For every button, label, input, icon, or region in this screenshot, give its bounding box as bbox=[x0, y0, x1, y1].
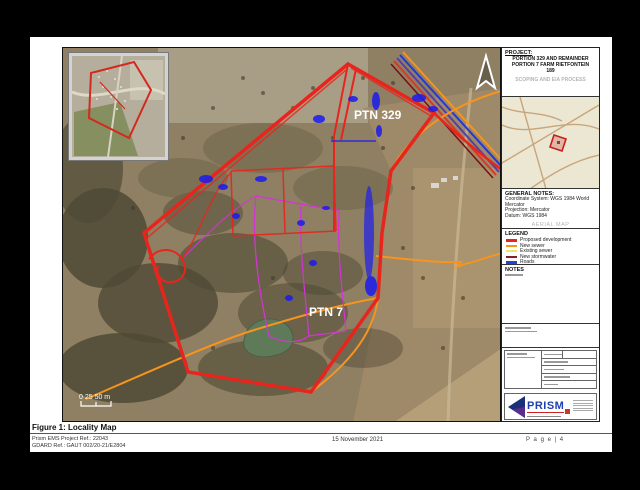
titleblock-table bbox=[504, 350, 597, 389]
process-label: SCOPING AND EIA PROCESS bbox=[502, 77, 599, 83]
legend-item: Proposed development bbox=[502, 238, 599, 243]
project-line-3: 189 bbox=[502, 68, 599, 74]
tb-row bbox=[542, 374, 596, 382]
scale-bar-text: 0 25 50 m bbox=[79, 394, 110, 401]
contact-line bbox=[573, 405, 593, 406]
prism-triangle-icon bbox=[508, 396, 525, 418]
tb-row bbox=[542, 381, 596, 388]
legend-item: New stormwater bbox=[502, 255, 599, 260]
legend-section: LEGEND Proposed development New sewer Ex… bbox=[502, 229, 599, 265]
title-block-panel: PROJECT: PORTION 329 AND REMAINDER PORTI… bbox=[501, 47, 600, 422]
figure-caption: Figure 1: Locality Map bbox=[32, 423, 116, 432]
contact-line bbox=[573, 410, 593, 411]
notes-section: NOTES bbox=[502, 265, 599, 324]
footer-date: 15 November 2021 bbox=[332, 437, 383, 443]
prism-red-square-icon bbox=[565, 409, 570, 414]
locality-inset-section bbox=[502, 97, 599, 189]
prism-wordmark: PRISM bbox=[527, 396, 570, 418]
tb-fine-print bbox=[544, 376, 570, 378]
label-ptn329: PTN 329 bbox=[354, 108, 402, 122]
project-section: PROJECT: PORTION 329 AND REMAINDER PORTI… bbox=[502, 48, 599, 97]
tb-row bbox=[542, 351, 596, 359]
tb-row bbox=[542, 366, 596, 374]
label-ptn7: PTN 7 bbox=[309, 305, 343, 319]
legend-item: Roads bbox=[502, 260, 599, 265]
locality-site-marker bbox=[550, 135, 566, 151]
legend-swatch-new-sewer bbox=[506, 245, 517, 247]
overview-inset-canvas bbox=[72, 56, 165, 157]
contact-line bbox=[573, 400, 593, 401]
project-ref: Prism EMS Project Ref.: 22043 bbox=[32, 436, 108, 442]
tb-fine-print bbox=[507, 357, 535, 359]
gn-line-4: Datum: WGS 1984 bbox=[502, 214, 599, 220]
prism-logo: PRISM bbox=[504, 393, 597, 420]
titleblock-left-cell bbox=[505, 351, 542, 388]
footer-divider bbox=[30, 433, 612, 434]
page-number: P a g e | 4 bbox=[526, 437, 564, 443]
contact-line bbox=[573, 403, 593, 404]
tb-fine-print bbox=[507, 353, 527, 355]
tb-fine-print bbox=[544, 361, 568, 363]
titleblock-rows bbox=[542, 351, 596, 388]
map-type-label: AERIAL MAP bbox=[502, 222, 599, 228]
locality-map: PTN 329 PTN 7 0 25 50 m bbox=[62, 47, 501, 422]
notes-fine-print bbox=[505, 274, 523, 276]
tb-fine-print bbox=[544, 369, 564, 371]
report-page: PTN 329 PTN 7 0 25 50 m bbox=[30, 37, 612, 452]
notes-header: NOTES bbox=[502, 265, 599, 273]
contact-details bbox=[573, 400, 593, 411]
bare-field bbox=[158, 48, 368, 123]
client-section bbox=[502, 324, 599, 348]
locality-inset-map bbox=[502, 97, 599, 189]
tb-fine-print bbox=[544, 384, 558, 386]
legend-swatch-proposed bbox=[506, 239, 517, 242]
titleblock-table-section bbox=[502, 348, 599, 391]
tb-row bbox=[542, 359, 596, 367]
project-header: PROJECT: bbox=[502, 48, 599, 56]
legend-swatch-stormwater bbox=[506, 256, 517, 258]
prism-brand-text: PRISM bbox=[527, 401, 564, 413]
client-fine-print bbox=[505, 327, 531, 329]
prism-tagline bbox=[527, 416, 561, 418]
gdard-ref: GDARD Ref.: GAUT 002/20-21/E2804 bbox=[32, 443, 125, 449]
tb-divider bbox=[562, 351, 576, 358]
legend-swatch-existing-sewer bbox=[506, 250, 517, 252]
inset-light-area bbox=[130, 60, 163, 100]
legend-swatch-roads bbox=[506, 261, 517, 264]
client-fine-print bbox=[505, 331, 537, 333]
legend-header: LEGEND bbox=[502, 229, 599, 237]
contact-line bbox=[573, 408, 593, 409]
tb-fine-print bbox=[544, 354, 562, 356]
logo-section: PRISM bbox=[502, 391, 599, 422]
overview-inset-map bbox=[69, 53, 168, 160]
general-notes-section: GENERAL NOTES: Coordinate System: WGS 19… bbox=[502, 189, 599, 229]
